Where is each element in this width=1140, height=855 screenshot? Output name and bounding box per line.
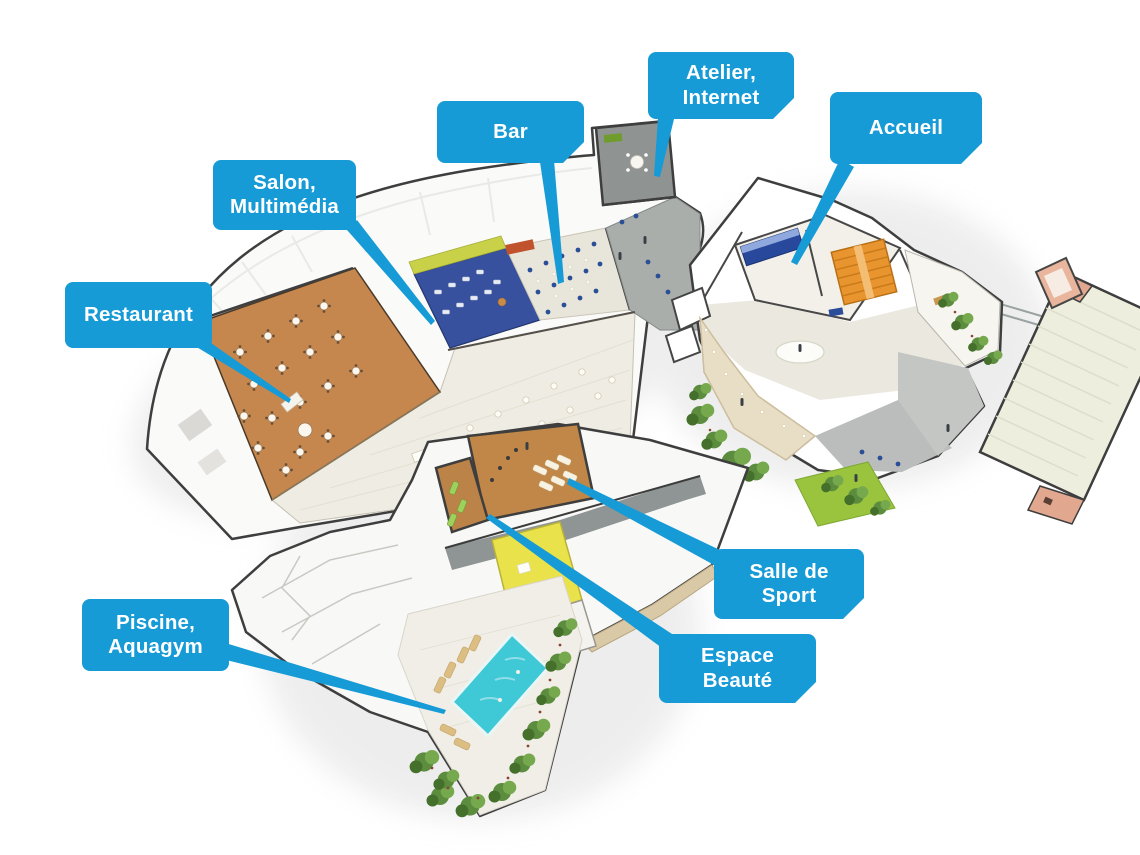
label-text-line: Multimédia bbox=[230, 195, 339, 220]
label-restaurant: Restaurant bbox=[65, 282, 212, 348]
label-text-line: Piscine, bbox=[116, 611, 195, 636]
label-text-line: Salle de bbox=[749, 560, 828, 585]
label-salle-de-sport: Salle de Sport bbox=[714, 549, 864, 619]
label-text-line: Beauté bbox=[703, 669, 773, 694]
label-text-line: Aquagym bbox=[108, 635, 203, 660]
label-text-line: Accueil bbox=[869, 116, 943, 141]
label-text-line: Salon, bbox=[253, 171, 316, 196]
label-piscine-aquagym: Piscine, Aquagym bbox=[82, 599, 229, 671]
label-bar: Bar bbox=[437, 101, 584, 163]
label-salon-multimedia: Salon, Multimédia bbox=[213, 160, 356, 230]
label-atelier-internet: Atelier, Internet bbox=[648, 52, 794, 119]
label-accueil: Accueil bbox=[830, 92, 982, 164]
label-espace-beaute: Espace Beauté bbox=[659, 634, 816, 703]
label-text-line: Sport bbox=[762, 584, 817, 609]
label-text-line: Espace bbox=[701, 644, 774, 669]
label-text-line: Bar bbox=[493, 120, 528, 145]
floor-plan-figure: Restaurant Salon, Multimédia Bar Atelier… bbox=[0, 0, 1140, 855]
label-text-line: Internet bbox=[683, 86, 760, 111]
label-text-line: Restaurant bbox=[84, 303, 193, 328]
label-text-line: Atelier, bbox=[686, 61, 756, 86]
